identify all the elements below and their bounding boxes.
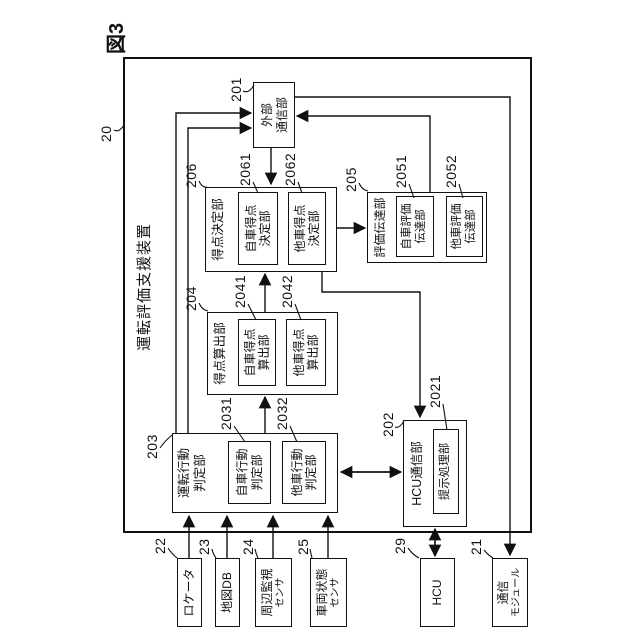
- block-2031-own-behavior: 自車行動 判定部: [228, 441, 271, 504]
- device-21-line1: 通信: [497, 581, 511, 605]
- block-2061-line2: 決定部: [258, 211, 272, 247]
- block-2051-line2: 伝達部: [415, 209, 429, 244]
- ref-label-202: 202: [380, 412, 396, 437]
- device-22-locator: ロケータ: [177, 558, 202, 627]
- device-24-perimeter-sensor: 周辺監視 センサ: [255, 558, 292, 627]
- block-2052-line2: 伝達部: [465, 209, 479, 244]
- device-29-hcu: HCU: [420, 558, 455, 627]
- block-203-behavior-determination: 運転行動 判定部 自車行動 判定部 他車行動 判定部: [172, 433, 338, 513]
- ref-label-2051: 2051: [393, 155, 409, 188]
- ref-label-25: 25: [295, 538, 311, 555]
- device-21-comm-module: 通信 モジュール: [492, 558, 528, 627]
- ref-label-20: 20: [98, 125, 114, 142]
- device-25-line2: センサ: [330, 578, 342, 608]
- block-2021-presentation-processing: 提示処理部: [433, 429, 459, 514]
- block-2032-line2: 判定部: [304, 455, 318, 491]
- ref-label-206: 206: [183, 163, 199, 188]
- block-206-title: 得点決定部: [211, 188, 227, 271]
- block-2031-line1: 自車行動: [235, 449, 249, 497]
- ref-label-2052: 2052: [443, 155, 459, 188]
- ref-label-22: 22: [152, 537, 168, 554]
- block-203-title: 運転行動 判定部: [177, 434, 208, 512]
- device-23-map-db: 地図DB: [215, 558, 240, 627]
- block-2032-line1: 他車行動: [290, 449, 304, 497]
- ref-label-2042: 2042: [279, 275, 295, 308]
- ref-label-204: 204: [183, 286, 199, 311]
- ref-label-29: 29: [392, 537, 408, 554]
- block-2052-other-eval-conveyance: 他車評価 伝達部: [446, 196, 483, 257]
- block-205-title: 評価伝達部: [373, 193, 388, 262]
- block-2062-line1: 他車得点: [293, 205, 307, 253]
- ref-label-2031: 2031: [218, 397, 234, 430]
- block-2041-line2: 算出部: [257, 335, 271, 371]
- block-203-title-line1: 運転行動: [177, 448, 191, 498]
- device-23-label: 地図DB: [221, 572, 235, 613]
- device-29-label: HCU: [431, 580, 445, 606]
- block-2062-other-score-decision: 他車得点 決定部: [288, 192, 326, 265]
- block-205-evaluation-conveyance: 評価伝達部 自車評価 伝達部 他車評価 伝達部: [367, 192, 487, 263]
- block-2042-line1: 他車得点: [292, 329, 306, 377]
- ref-label-21: 21: [468, 538, 484, 555]
- device-24-line2: センサ: [275, 578, 287, 608]
- block-206-score-decision: 得点決定部 自車得点 決定部 他車得点 決定部: [205, 187, 337, 272]
- device-title: 運転評価支援装置: [133, 223, 154, 351]
- ref-label-2062: 2062: [282, 153, 298, 186]
- block-2051-own-eval-conveyance: 自車評価 伝達部: [396, 196, 434, 257]
- ref-label-201: 201: [228, 77, 244, 102]
- device-21-line2: モジュール: [511, 568, 523, 617]
- block-2041-line1: 自車得点: [243, 329, 257, 377]
- block-201-line1: 外部: [260, 103, 274, 127]
- block-2021-title: 提示処理部: [439, 443, 453, 501]
- patent-figure: 運転評価支援装置 運転行動 判定部 自車行動 判定部 他車行動 判定部 得点算出…: [0, 0, 640, 640]
- ref-label-23: 23: [196, 538, 212, 555]
- block-2061-own-score-decision: 自車得点 決定部: [238, 192, 278, 265]
- device-25-line1: 車両状態: [316, 569, 330, 617]
- block-2042-other-score-calc: 他車得点 算出部: [286, 319, 326, 386]
- block-2051-line1: 自車評価: [401, 204, 415, 250]
- ref-label-203: 203: [144, 434, 160, 459]
- diagram-canvas: 運転評価支援装置 運転行動 判定部 自車行動 判定部 他車行動 判定部 得点算出…: [0, 0, 640, 640]
- block-201-external-communication: 外部 通信部: [253, 82, 295, 148]
- block-2031-line2: 判定部: [250, 455, 264, 491]
- block-2032-other-behavior: 他車行動 判定部: [282, 441, 326, 504]
- block-202-title: HCU通信部: [410, 421, 426, 526]
- device-25-vehicle-state-sensor: 車両状態 センサ: [310, 558, 347, 627]
- block-203-title-line2: 判定部: [193, 454, 207, 492]
- block-204-score-calculation: 得点算出部 自車得点 算出部 他車得点 算出部: [207, 312, 338, 395]
- device-22-label: ロケータ: [183, 569, 197, 617]
- ref-label-2041: 2041: [232, 275, 248, 308]
- ref-label-24: 24: [240, 538, 256, 555]
- figure-number: 図3: [100, 23, 129, 54]
- block-202-hcu-communication: HCU通信部 提示処理部: [403, 420, 467, 527]
- block-2041-own-score-calc: 自車得点 算出部: [238, 319, 276, 386]
- block-2042-line2: 算出部: [306, 335, 320, 371]
- block-2061-line1: 自車得点: [244, 205, 258, 253]
- ref-label-205: 205: [343, 167, 359, 192]
- block-201-line2: 通信部: [275, 97, 289, 133]
- block-2052-line1: 他車評価: [451, 204, 465, 250]
- ref-label-2021: 2021: [427, 375, 443, 408]
- block-204-title: 得点算出部: [213, 313, 229, 394]
- ref-label-2032: 2032: [274, 397, 290, 430]
- device-24-line1: 周辺監視: [261, 569, 275, 617]
- ref-label-2061: 2061: [237, 153, 253, 186]
- block-2062-line2: 決定部: [307, 211, 321, 247]
